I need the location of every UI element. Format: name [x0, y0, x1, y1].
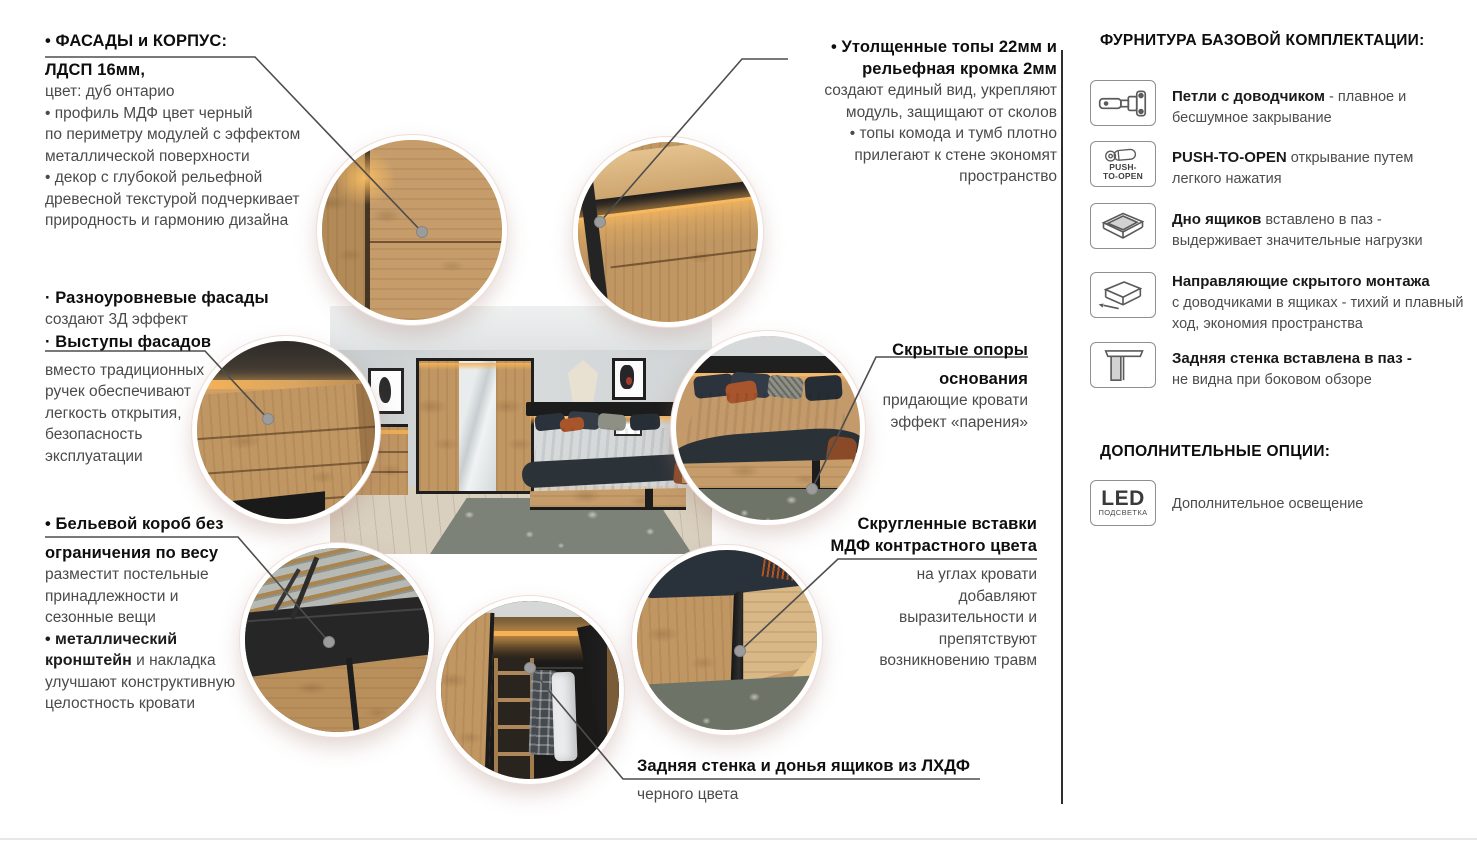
note-linenbox: • Бельевой короб без ограничения по весу…	[45, 513, 285, 715]
note-line: цвет: дуб онтарио	[45, 81, 325, 103]
callout-top-closeup	[573, 137, 763, 327]
wardrobe-door-left	[419, 361, 459, 491]
led-label: LED	[1101, 489, 1145, 508]
seam-line	[369, 241, 506, 243]
note-back: Задняя стенка и донья ящиков из ЛХДФ чер…	[637, 755, 1017, 806]
note-title: · Выступы фасадов	[45, 331, 285, 353]
note-line: создают единый вид, укрепляют	[745, 80, 1057, 102]
drawer-bottom-glyph	[1097, 207, 1149, 245]
sidebar-divider	[1061, 50, 1063, 804]
item-line: бесшумное закрывание	[1172, 108, 1474, 129]
item-bold: PUSH-TO-OPEN	[1172, 149, 1287, 166]
note-title: • Утолщенные топы 22мм и	[745, 36, 1057, 58]
note-line: по периметру модулей с эффектом	[45, 124, 325, 146]
note-line: вместо традиционных	[45, 360, 285, 382]
note-line: создают 3Д эффект	[45, 309, 285, 331]
item-line: ход, экономия пространства	[1172, 314, 1474, 335]
push-label: PUSH- TO-OPEN	[1103, 163, 1143, 182]
callout-wardrobe-interior	[436, 596, 624, 784]
corner-insert	[645, 488, 653, 507]
side-wood	[607, 640, 624, 757]
wardrobe-mirror	[459, 361, 496, 491]
note-line: легкость открытия,	[45, 403, 285, 425]
callout-corner-insert	[632, 545, 822, 735]
bed-base	[683, 459, 852, 490]
note-title: Скругленные вставки	[810, 513, 1037, 535]
note-line: пространство	[745, 166, 1057, 188]
item-text: - плавное и	[1325, 89, 1406, 105]
note-line: сезонные вещи	[45, 607, 285, 629]
note-line: металлической поверхности	[45, 146, 325, 168]
led-icon: LED ПОДСВЕТКА	[1090, 480, 1156, 526]
option-item-lighting: Дополнительное освещение	[1172, 494, 1474, 515]
callout-facade-closeup	[317, 135, 507, 325]
led-glow	[419, 363, 531, 370]
note-title: МДФ контрастного цвета	[810, 535, 1037, 557]
note-line: выразительности и	[810, 607, 1037, 629]
back-panel-icon	[1090, 342, 1156, 388]
item-line: Петли с доводчиком - плавное и	[1172, 86, 1474, 108]
note-title: основания	[800, 368, 1028, 390]
door-panel	[436, 611, 494, 784]
corner-insert	[812, 459, 820, 487]
note-title: ограничения по весу	[45, 542, 285, 564]
note-title: • Бельевой короб без	[45, 513, 285, 535]
wardrobe	[416, 358, 534, 494]
note-line: ручек обеспечивают	[45, 381, 285, 403]
note-line: добавляют	[810, 586, 1037, 608]
item-line: PUSH-TO-OPEN открывание путем	[1172, 147, 1474, 169]
drawer-bottom-icon	[1090, 203, 1156, 249]
drawer-slides-icon	[1090, 272, 1156, 318]
page-bottom-edge	[0, 838, 1477, 840]
note-title: ЛДСП 16мм,	[45, 59, 325, 81]
note-tops: • Утолщенные топы 22мм и рельефная кромк…	[745, 36, 1057, 188]
note-line: • профиль МДФ цвет черный	[45, 103, 325, 125]
note-title: Скрытые опоры	[800, 339, 1028, 361]
note-inserts: Скругленные вставки МДФ контрастного цве…	[810, 513, 1037, 672]
hinge-icon	[1090, 80, 1156, 126]
product-infographic: • ФАСАДЫ и КОРПУС: ЛДСП 16мм, цвет: дуб …	[0, 0, 1477, 856]
hardware-item-hinges: Петли с доводчиком - плавное и бесшумное…	[1172, 86, 1474, 129]
item-bold: Петли с доводчиком	[1172, 88, 1325, 105]
note-line: эксплуатации	[45, 446, 285, 468]
note-line: модуль, защищают от сколов	[745, 102, 1057, 124]
push-latch-glyph	[1100, 147, 1146, 163]
note-title: рельефная кромка 2мм	[745, 58, 1057, 80]
bed-base	[530, 488, 686, 510]
hinge-icon-glyph	[1097, 85, 1149, 121]
note-title: • ФАСАДЫ и КОРПУС:	[45, 30, 325, 52]
note-line: • металлический	[45, 629, 285, 651]
item-line: Задняя стенка вставлена в паз -	[1172, 348, 1474, 370]
hardware-heading: ФУРНИТУРА БАЗОВОЙ КОМПЛЕКТАЦИИ:	[1100, 32, 1425, 50]
back-panel-glyph	[1097, 346, 1149, 384]
note-line: древесной текстурой подчеркивает	[45, 189, 325, 211]
note-bold-word: кронштейн	[45, 652, 132, 669]
note-line: принадлежности и	[45, 586, 285, 608]
note-line: черного цвета	[637, 784, 1017, 806]
note-line: эффект «парения»	[800, 412, 1028, 434]
note-title: Задняя стенка и донья ящиков из ЛХДФ	[637, 755, 1017, 777]
note-line: возникновению травм	[810, 650, 1037, 672]
note-facades: • ФАСАДЫ и КОРПУС: ЛДСП 16мм, цвет: дуб …	[45, 30, 325, 232]
white-shirt	[552, 672, 578, 762]
note-line: безопасность	[45, 424, 285, 446]
led-sublabel: ПОДСВЕТКА	[1098, 508, 1147, 517]
item-line: выдерживает значительные нагрузки	[1172, 231, 1474, 252]
item-line: Дополнительное освещение	[1172, 494, 1474, 515]
bedroom-photo	[330, 306, 712, 554]
art-accent	[626, 377, 632, 385]
note-rest: и накладка	[132, 652, 216, 669]
push-label-line2: TO-OPEN	[1103, 172, 1143, 182]
note-line: кронштейн и накладка	[45, 650, 285, 672]
art-figure	[379, 377, 391, 403]
wall-art-frame	[612, 358, 646, 400]
note-line: улучшают конструктивную	[45, 672, 285, 694]
options-heading: ДОПОЛНИТЕЛЬНЫЕ ОПЦИИ:	[1100, 443, 1330, 461]
note-line: прилегают к стене экономят	[745, 145, 1057, 167]
item-bold: Задняя стенка вставлена в паз -	[1172, 350, 1412, 367]
note-line: целостность кровати	[45, 693, 285, 715]
note-supports: Скрытые опоры основания придающие кроват…	[800, 339, 1028, 433]
hardware-item-backpanel: Задняя стенка вставлена в паз - не видна…	[1172, 348, 1474, 391]
item-bold: Направляющие скрытого монтажа	[1172, 273, 1430, 290]
blanket-fringe	[761, 551, 804, 581]
drawer-slides-glyph	[1097, 276, 1149, 314]
led-glow	[322, 140, 408, 216]
hardware-item-push: PUSH-TO-OPEN открывание путем легкого на…	[1172, 147, 1474, 190]
hardware-item-bottom: Дно ящиков вставлено в паз - выдерживает…	[1172, 209, 1474, 252]
note-title: · Разноуровневые фасады	[45, 287, 285, 309]
item-bold: Дно ящиков	[1172, 211, 1261, 228]
note-line: препятствуют	[810, 629, 1037, 651]
note-line: разместит постельные	[45, 564, 285, 586]
shelf-column	[494, 658, 533, 783]
item-line: не видна при боковом обзоре	[1172, 370, 1474, 391]
item-text: вставлено в паз -	[1261, 212, 1381, 228]
note-line: • топы комода и тумб плотно	[745, 123, 1057, 145]
note-line: придающие кровати	[800, 390, 1028, 412]
item-line: Дно ящиков вставлено в паз -	[1172, 209, 1474, 231]
note-line: • декор с глубокой рельефной	[45, 167, 325, 189]
item-text: открывание путем	[1287, 150, 1414, 166]
item-line: Направляющие скрытого монтажа	[1172, 271, 1474, 293]
item-line: легкого нажатия	[1172, 169, 1474, 190]
push-to-open-icon: PUSH- TO-OPEN	[1090, 141, 1156, 187]
hanging-rod	[530, 667, 583, 669]
note-levels: · Разноуровневые фасады создают 3Д эффек…	[45, 287, 285, 467]
note-line: на углах кровати	[810, 564, 1037, 586]
note-line: природность и гармонию дизайна	[45, 210, 325, 232]
area-rug	[632, 674, 822, 735]
hardware-item-slides: Направляющие скрытого монтажа с доводчик…	[1172, 271, 1474, 335]
item-line: с доводчиками в ящиках - тихий и плавный	[1172, 293, 1474, 314]
